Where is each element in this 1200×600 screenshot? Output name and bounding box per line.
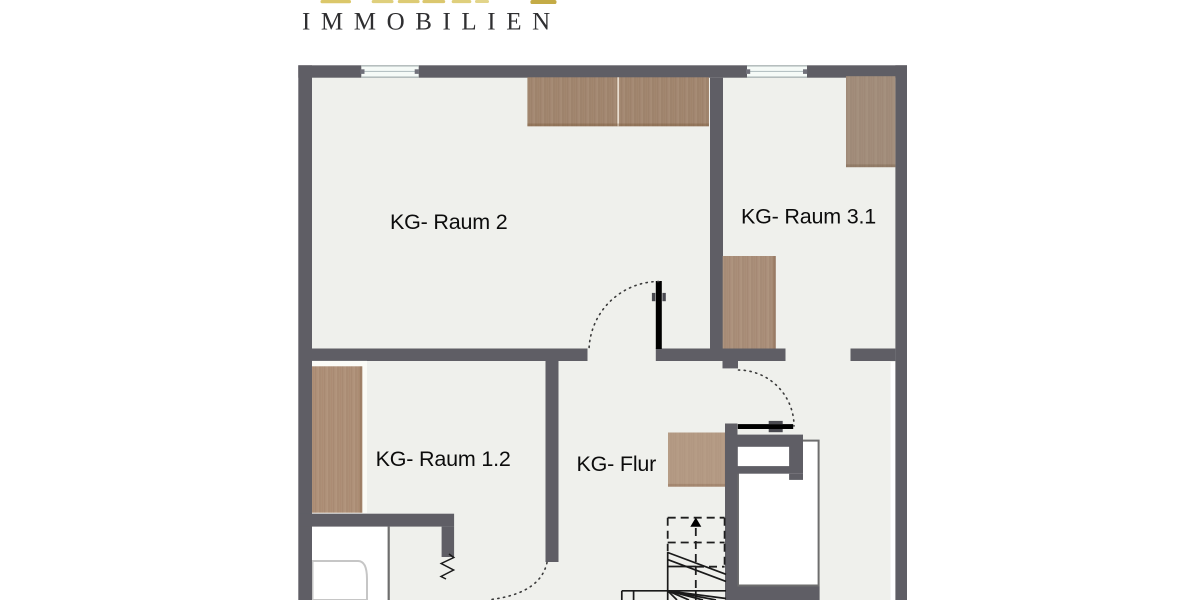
svg-text:KG- Raum 3.1: KG- Raum 3.1 <box>741 205 876 229</box>
svg-text:KG- Flur: KG- Flur <box>577 452 657 476</box>
svg-text:IMMOBILIEN: IMMOBILIEN <box>302 8 561 35</box>
svg-text:KG- Raum 1.2: KG- Raum 1.2 <box>376 447 511 471</box>
svg-text:KG- Raum 2: KG- Raum 2 <box>390 210 507 234</box>
